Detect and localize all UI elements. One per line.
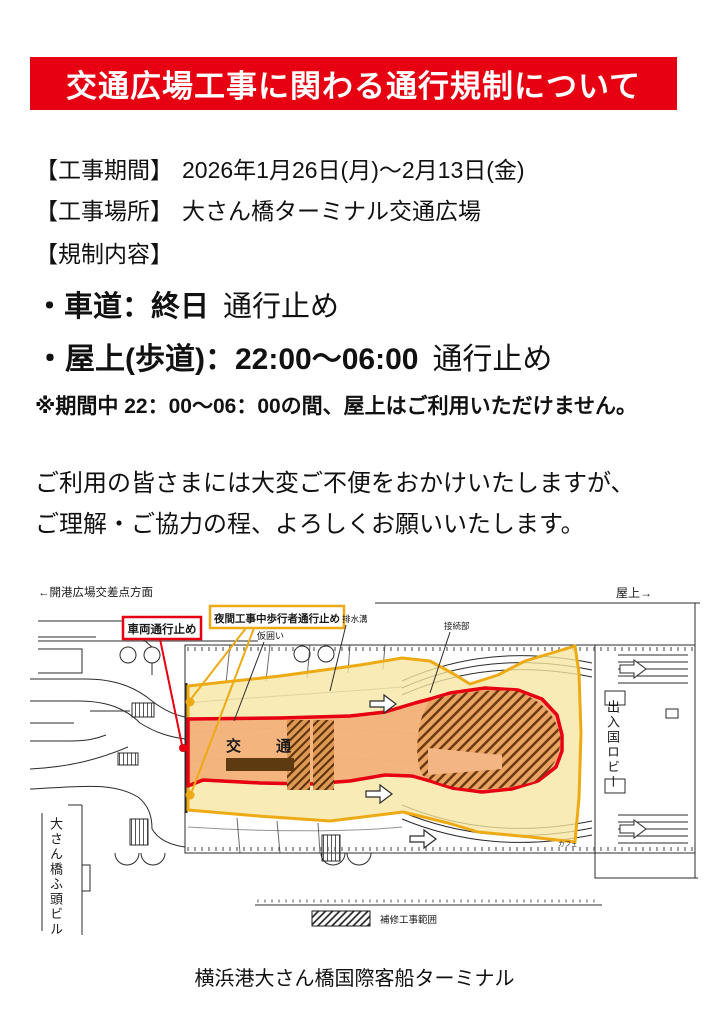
pier-building-label: 大さん橋ふ頭ビル bbox=[46, 817, 65, 937]
footer-terminal-name: 横浜港大さん橋国際客船ターミナル bbox=[0, 962, 709, 991]
roof-restriction-line: ・屋上(歩道)：22:00～06:00通行止め bbox=[35, 334, 552, 378]
legend-label: 補修工事範囲 bbox=[380, 914, 437, 926]
drain-label: 排水溝 bbox=[342, 614, 368, 624]
notice-page: 交通広場工事に関わる通行規制について 【工事期間】2026年1月26日(月)～2… bbox=[0, 0, 709, 1024]
road-restriction-line: ・車道：終日通行止め bbox=[35, 283, 339, 325]
restriction-content-label: 【規制内容】 bbox=[35, 235, 173, 269]
night-callout-label: 夜間工事中歩行者通行止め bbox=[213, 612, 340, 625]
terminal-map: 交 通 車両通行止め 夜間工事中歩行者通行止め 仮囲い 排水溝 接続部 ←開港広… bbox=[30, 583, 702, 953]
restriction-note: ※期間中 22：00～06：00の間、屋上はご利用いただけません。 bbox=[35, 390, 637, 420]
night-leader-dot-2 bbox=[186, 791, 195, 800]
place-label: 【工事場所】 bbox=[35, 198, 173, 224]
road-restriction-tail: 通行止め bbox=[223, 291, 339, 323]
title-banner: 交通広場工事に関わる通行規制について bbox=[30, 57, 677, 110]
legend-hatch-swatch bbox=[312, 911, 370, 926]
night-leader-dot-1 bbox=[186, 698, 195, 707]
temporary-fence-label: 仮囲い bbox=[257, 630, 284, 641]
connection-label: 接続部 bbox=[444, 621, 470, 631]
vehicle-leader-line bbox=[160, 639, 182, 745]
direction-right-label: 屋上→ bbox=[616, 586, 652, 600]
apology-line-1: ご利用の皆さまには大変ご不便をおかけいたしますが、 bbox=[35, 463, 635, 498]
repair-strip-2 bbox=[313, 720, 334, 790]
road-restriction-head: ・車道：終日 bbox=[35, 291, 209, 323]
shelter-bar bbox=[226, 758, 294, 771]
apology-line-2: ご理解・ご協力の程、よろしくお願いいたします。 bbox=[35, 504, 585, 539]
cafe-label: カフェ bbox=[558, 840, 578, 848]
place-value: 大さん橋ターミナル交通広場 bbox=[182, 198, 481, 224]
direction-left-label: ←開港広場交差点方面 bbox=[38, 585, 153, 599]
construction-period-line: 【工事期間】2026年1月26日(月)～2月13日(金) bbox=[35, 151, 525, 185]
roof-restriction-head: ・屋上(歩道)：22:00～06:00 bbox=[35, 343, 418, 376]
lobby-label: 出入国ロビー bbox=[603, 700, 622, 790]
roof-restriction-tail: 通行止め bbox=[432, 343, 552, 376]
repair-strip-1 bbox=[287, 720, 310, 790]
vehicle-leader-dot bbox=[179, 744, 187, 752]
vehicle-callout-label: 車両通行止め bbox=[128, 622, 197, 636]
repair-hatch-lobe bbox=[417, 690, 560, 789]
plaza-label: 交 通 bbox=[226, 737, 301, 755]
construction-place-line: 【工事場所】大さん橋ターミナル交通広場 bbox=[35, 192, 481, 226]
page-title: 交通広場工事に関わる通行規制について bbox=[66, 61, 641, 106]
period-label: 【工事期間】 bbox=[35, 157, 173, 183]
period-value: 2026年1月26日(月)～2月13日(金) bbox=[182, 157, 525, 183]
